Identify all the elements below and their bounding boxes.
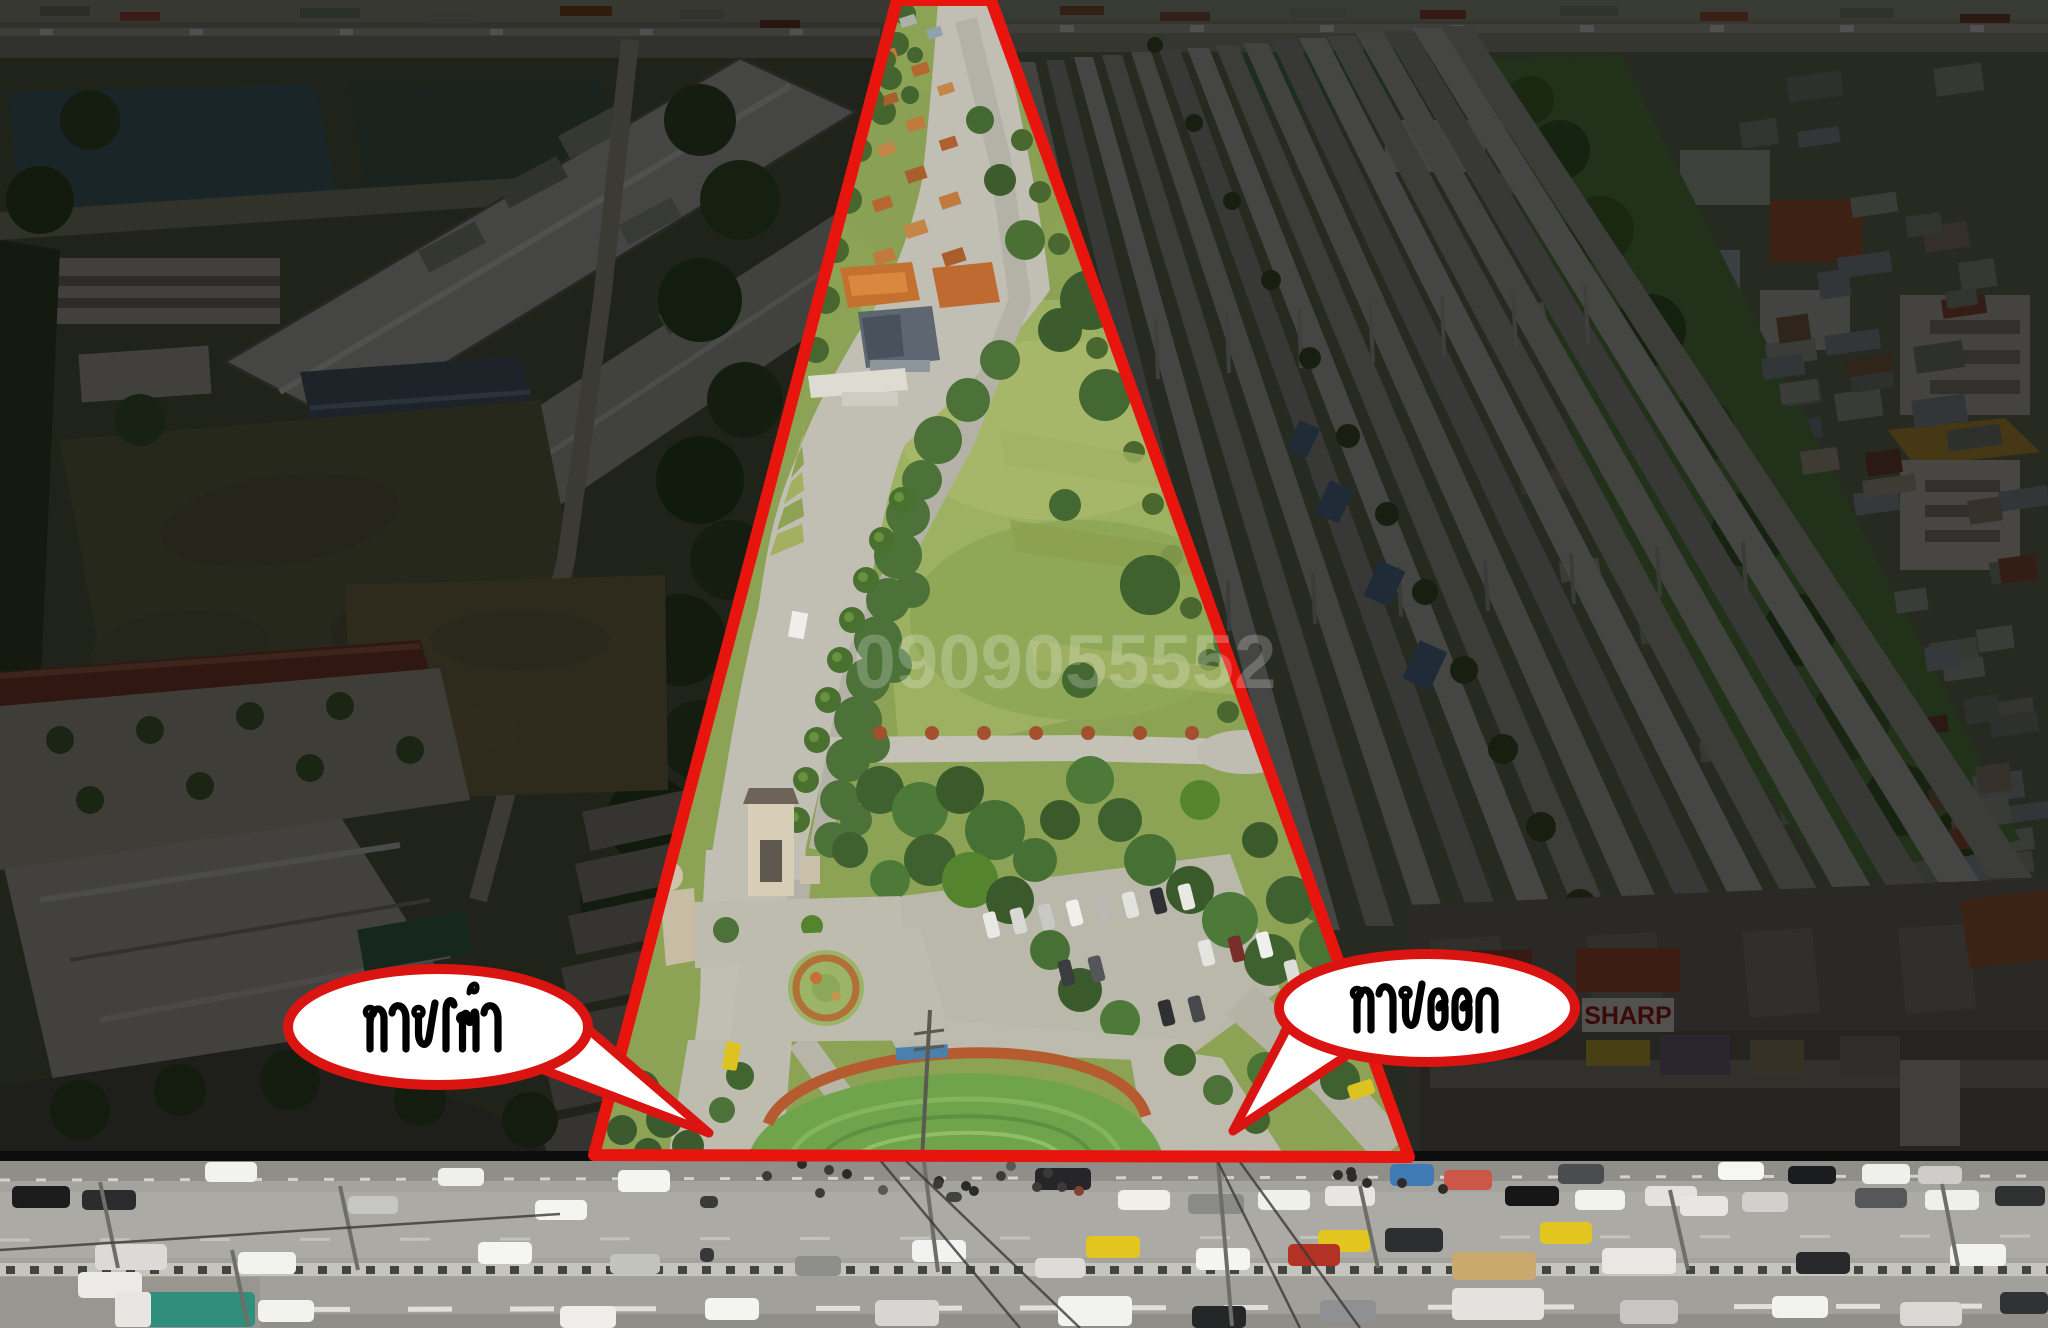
svg-text:0909055552: 0909055552 [854, 620, 1277, 705]
